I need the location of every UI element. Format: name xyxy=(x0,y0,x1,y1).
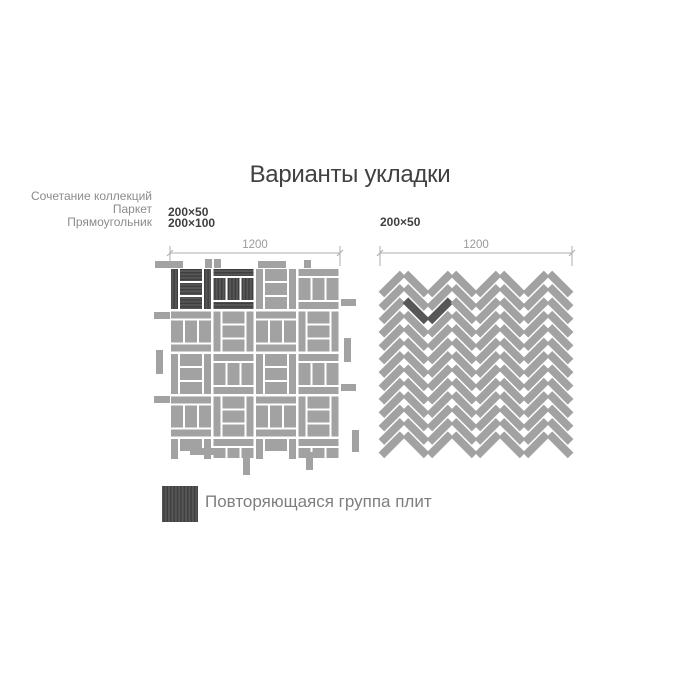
left-dimension-label: 1200 xyxy=(225,239,285,251)
illustration-canvas: Варианты укладки Сочетание коллекций Пар… xyxy=(0,0,700,700)
legend-label: Повторяющаяся группа плит xyxy=(205,492,432,512)
left-size-line: 200×100 xyxy=(168,218,215,229)
collections-note: Сочетание коллекций Паркет Прямоугольник xyxy=(31,190,152,229)
herringbone-diagram xyxy=(381,273,570,455)
collections-note-line: Прямоугольник xyxy=(31,216,152,229)
right-dimension-label: 1200 xyxy=(446,239,506,251)
legend-swatch xyxy=(162,486,198,522)
right-size-line: 200×50 xyxy=(380,217,420,228)
basketweave-diagram xyxy=(154,259,359,475)
page-title: Варианты укладки xyxy=(0,161,700,189)
patterns-artwork xyxy=(0,0,700,700)
left-sizes-label: 200×50 200×100 xyxy=(168,207,215,228)
right-sizes-label: 200×50 xyxy=(380,217,420,228)
